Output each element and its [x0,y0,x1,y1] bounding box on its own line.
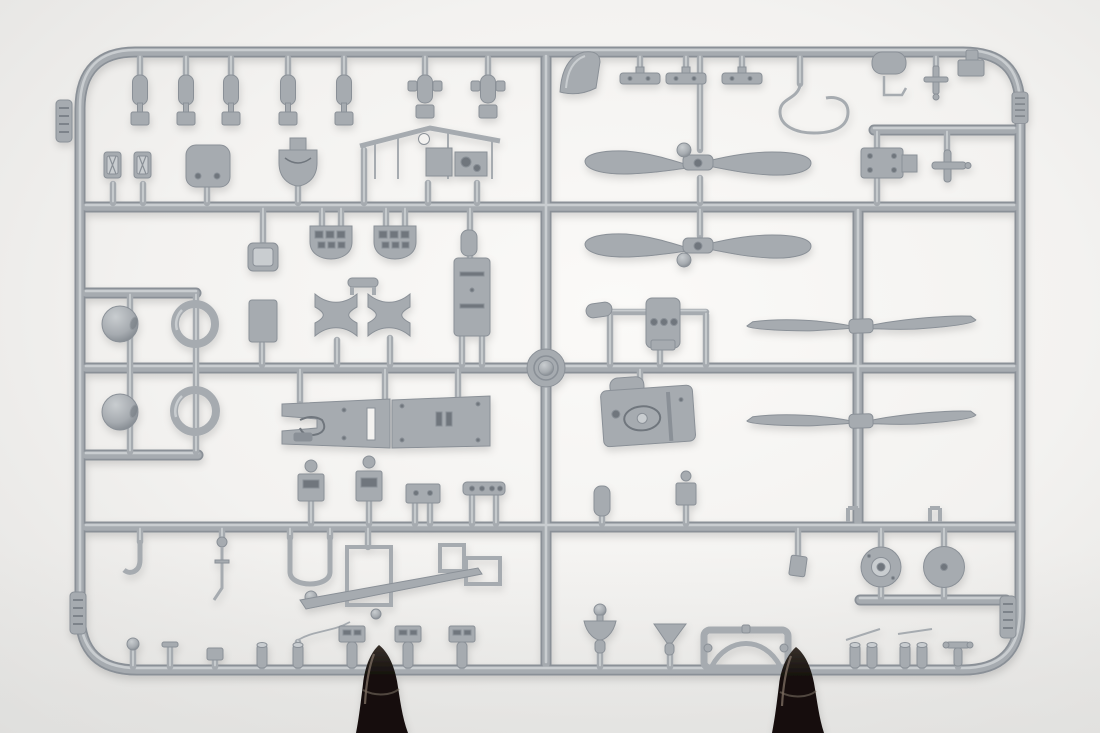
wheel-hub [861,547,901,587]
label-boss [1000,596,1016,638]
ball-post [127,638,139,650]
seat [134,152,151,178]
hatch-panel [249,300,277,342]
instrument-panel [374,226,416,259]
small-fitting [335,75,353,125]
instrument-panel [310,226,352,259]
flap-fitting [789,555,808,577]
t-post [162,642,178,647]
clamp-block [207,648,223,660]
label-boss [70,592,86,634]
label-boss [56,100,72,142]
headrest-part [872,52,906,74]
label-boss [1012,92,1028,124]
cylinder-post [257,643,267,669]
equipment-tray [248,243,278,271]
small-fitting [222,75,240,125]
center-boss [527,349,565,387]
seat [104,152,121,178]
exhaust-ladder [463,482,505,495]
small-fitting [279,75,297,125]
engine-bracket [646,298,680,350]
wheel-disc [924,547,965,588]
photo-stage: Gray injection-molded plastic model kit … [0,0,1100,733]
sprue-photo: Gray injection-molded plastic model kit … [0,0,1100,733]
firewall-panel [186,145,230,187]
small-fitting [177,75,195,125]
vent-panel [406,484,440,503]
fuselage-deck-right [392,396,490,448]
small-fitting [131,75,149,125]
cylinder-fitting [594,486,610,516]
